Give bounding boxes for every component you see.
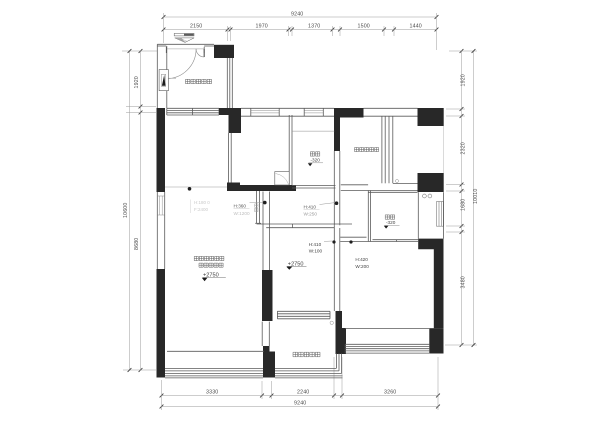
svg-text:8680: 8680: [134, 238, 140, 250]
svg-text:H:410: H:410: [309, 242, 322, 247]
svg-text:1500: 1500: [358, 24, 370, 30]
svg-text:9240: 9240: [291, 12, 303, 18]
svg-text:2240: 2240: [297, 390, 309, 396]
svg-text:F:2400: F:2400: [194, 207, 209, 212]
svg-text:3480: 3480: [461, 276, 467, 288]
svg-text:W:250: W:250: [304, 212, 318, 217]
svg-text:1920: 1920: [461, 74, 467, 86]
svg-text:10600: 10600: [123, 203, 129, 218]
svg-text:H:420: H:420: [355, 257, 368, 262]
svg-text:1370: 1370: [308, 24, 320, 30]
svg-text:H:180 0: H:180 0: [194, 200, 210, 205]
svg-text:-320: -320: [386, 220, 396, 225]
svg-text:W:1200: W:1200: [234, 211, 250, 216]
svg-text:-320: -320: [311, 158, 321, 163]
svg-text:H:360: H:360: [234, 203, 247, 208]
svg-text:9240: 9240: [294, 401, 306, 407]
svg-text:1680: 1680: [461, 199, 467, 211]
svg-text:H:410: H:410: [304, 204, 317, 209]
svg-text:10010: 10010: [473, 189, 479, 204]
svg-text:1440: 1440: [410, 24, 422, 30]
svg-text:2320: 2320: [461, 142, 467, 154]
svg-text:W:200: W:200: [355, 264, 369, 269]
svg-text:2150: 2150: [190, 24, 202, 30]
svg-text:1970: 1970: [256, 24, 268, 30]
svg-text:1920: 1920: [134, 76, 140, 88]
svg-text:3260: 3260: [384, 390, 396, 396]
svg-text:3330: 3330: [206, 390, 218, 396]
svg-text:W:100: W:100: [309, 249, 323, 254]
